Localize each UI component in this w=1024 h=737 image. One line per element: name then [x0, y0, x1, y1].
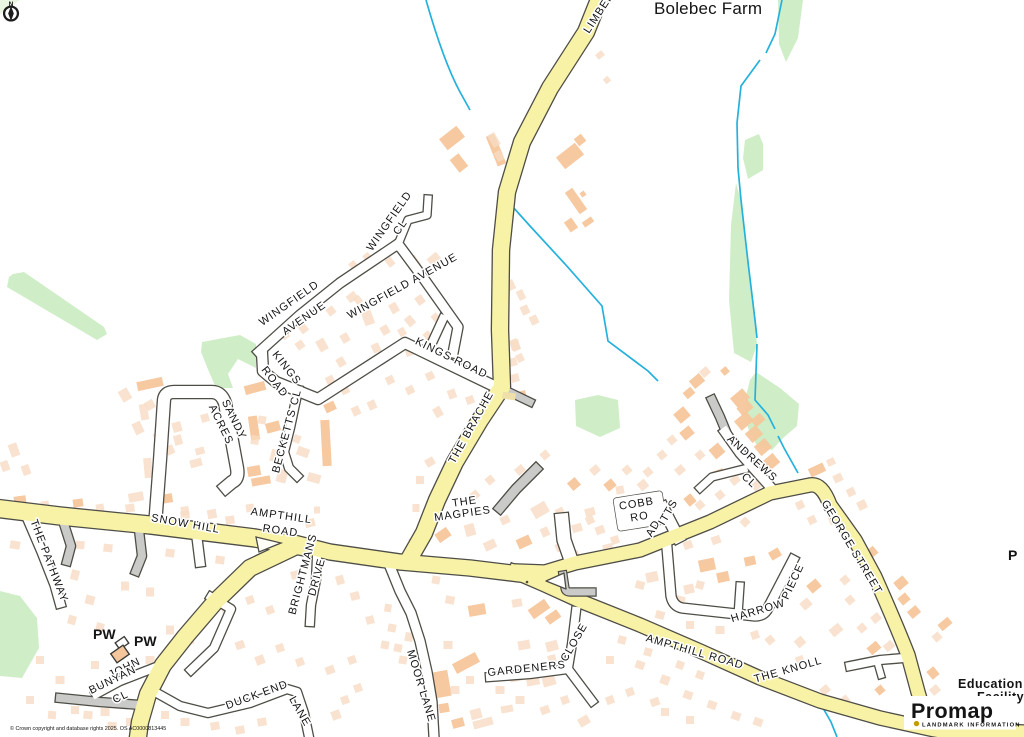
svg-text:© Crown copyright and database: © Crown copyright and database rights 20…: [10, 725, 166, 732]
svg-text:Bolebec Farm: Bolebec Farm: [654, 0, 762, 18]
svg-text:N: N: [9, 1, 14, 8]
svg-text:PW: PW: [93, 626, 116, 642]
svg-text:Education: Education: [958, 677, 1023, 691]
svg-text:LANDMARK INFORMATION: LANDMARK INFORMATION: [922, 723, 1021, 729]
svg-text:Promap: Promap: [911, 699, 993, 723]
svg-text:PW: PW: [134, 633, 157, 649]
svg-text:P: P: [1008, 547, 1017, 563]
